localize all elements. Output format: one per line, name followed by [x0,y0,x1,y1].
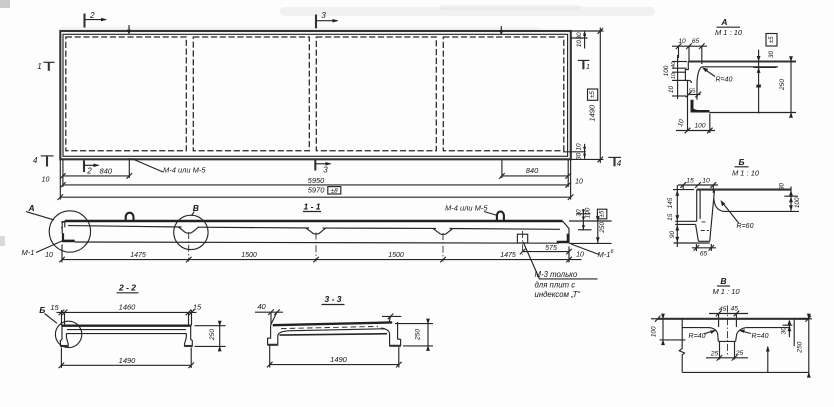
svg-text:65: 65 [700,251,708,258]
svg-text:250: 250 [797,341,804,353]
svg-text:4: 4 [617,159,622,168]
svg-text:R=40: R=40 [752,333,769,340]
svg-text:6: 6 [611,249,615,255]
svg-text:250: 250 [599,222,606,234]
svg-text:90: 90 [669,231,676,239]
svg-text:30: 30 [778,183,785,191]
svg-text:1: 1 [586,64,590,71]
svg-text:1 - 1: 1 - 1 [303,201,320,211]
svg-text:3: 3 [321,11,326,20]
svg-text:10: 10 [576,40,583,48]
svg-text:±5: ±5 [768,36,775,43]
svg-text:1500: 1500 [241,252,257,259]
svg-text:100: 100 [650,326,657,337]
svg-text:М 1 : 10: М 1 : 10 [715,28,743,37]
svg-text:10: 10 [671,72,677,79]
svg-text:1490: 1490 [587,104,596,122]
svg-text:±5: ±5 [589,91,596,98]
svg-text:10: 10 [42,177,50,184]
svg-text:М 1 : 10: М 1 : 10 [712,287,740,296]
svg-text:40: 40 [257,302,266,311]
svg-text:100: 100 [585,207,592,218]
svg-text:55: 55 [689,88,695,94]
svg-text:100: 100 [694,123,705,130]
svg-text:±8: ±8 [331,188,338,195]
svg-text:10: 10 [677,118,686,127]
svg-text:Б: Б [39,305,45,315]
svg-text:для плит с: для плит с [535,280,576,289]
svg-text:±5: ±5 [600,210,606,217]
svg-text:25: 25 [735,350,744,357]
svg-text:25: 25 [710,350,719,357]
svg-text:А: А [28,203,35,213]
svg-text:1475: 1475 [500,252,516,259]
svg-text:R=60: R=60 [737,223,754,230]
svg-text:145: 145 [667,197,674,208]
svg-text:250: 250 [779,79,786,91]
svg-text:30: 30 [576,152,583,160]
svg-text:250: 250 [209,329,216,341]
svg-text:10: 10 [668,86,675,94]
svg-text:М-1: М-1 [598,250,611,259]
svg-text:10: 10 [678,38,686,45]
svg-text:10: 10 [575,179,583,186]
svg-text:3: 3 [323,166,328,175]
svg-text:10: 10 [45,252,53,259]
svg-text:65: 65 [692,38,700,45]
svg-text:индексом „Т“: индексом „Т“ [535,290,581,299]
svg-text:Б: Б [738,157,744,167]
svg-text:30: 30 [575,209,582,217]
svg-text:840: 840 [100,167,113,176]
svg-text:45: 45 [719,306,727,313]
svg-text:30: 30 [768,51,775,59]
svg-text:В: В [720,276,726,286]
svg-text:М-1: М-1 [22,248,35,257]
svg-text:10: 10 [702,177,710,184]
svg-text:R=40: R=40 [716,77,733,84]
svg-text:15: 15 [686,177,694,184]
svg-text:15: 15 [667,213,674,221]
svg-text:1460: 1460 [119,303,137,312]
svg-text:2: 2 [89,11,95,20]
svg-text:15: 15 [50,303,59,312]
svg-text:М-3 только: М-3 только [535,270,578,279]
svg-text:1490: 1490 [330,355,348,364]
svg-text:250: 250 [415,329,422,341]
svg-text:М 1 : 10: М 1 : 10 [732,169,760,178]
svg-text:1500: 1500 [388,252,404,259]
svg-text:5950: 5950 [308,176,326,185]
svg-text:М-4 или М-5: М-4 или М-5 [163,166,206,175]
svg-text:1: 1 [37,62,41,71]
svg-text:М-4 или М-5: М-4 или М-5 [445,204,488,213]
svg-text:А: А [720,17,727,27]
svg-text:3 - 3: 3 - 3 [324,294,341,304]
svg-text:45: 45 [731,305,739,312]
svg-text:100: 100 [663,65,670,76]
svg-text:5970: 5970 [308,186,326,195]
svg-text:15: 15 [193,303,202,312]
svg-text:R=40: R=40 [689,333,706,340]
svg-text:100: 100 [794,197,801,208]
svg-text:2 - 2: 2 - 2 [118,283,136,293]
svg-text:30: 30 [576,32,583,40]
svg-text:575: 575 [545,245,557,252]
svg-text:10: 10 [576,143,583,151]
svg-text:840: 840 [526,166,539,175]
svg-text:2: 2 [86,166,92,175]
svg-text:4: 4 [33,156,38,165]
svg-text:1475: 1475 [130,252,146,259]
svg-text:1490: 1490 [119,356,137,365]
svg-text:40: 40 [671,61,677,68]
svg-text:30: 30 [781,327,788,335]
svg-text:10: 10 [576,252,584,259]
